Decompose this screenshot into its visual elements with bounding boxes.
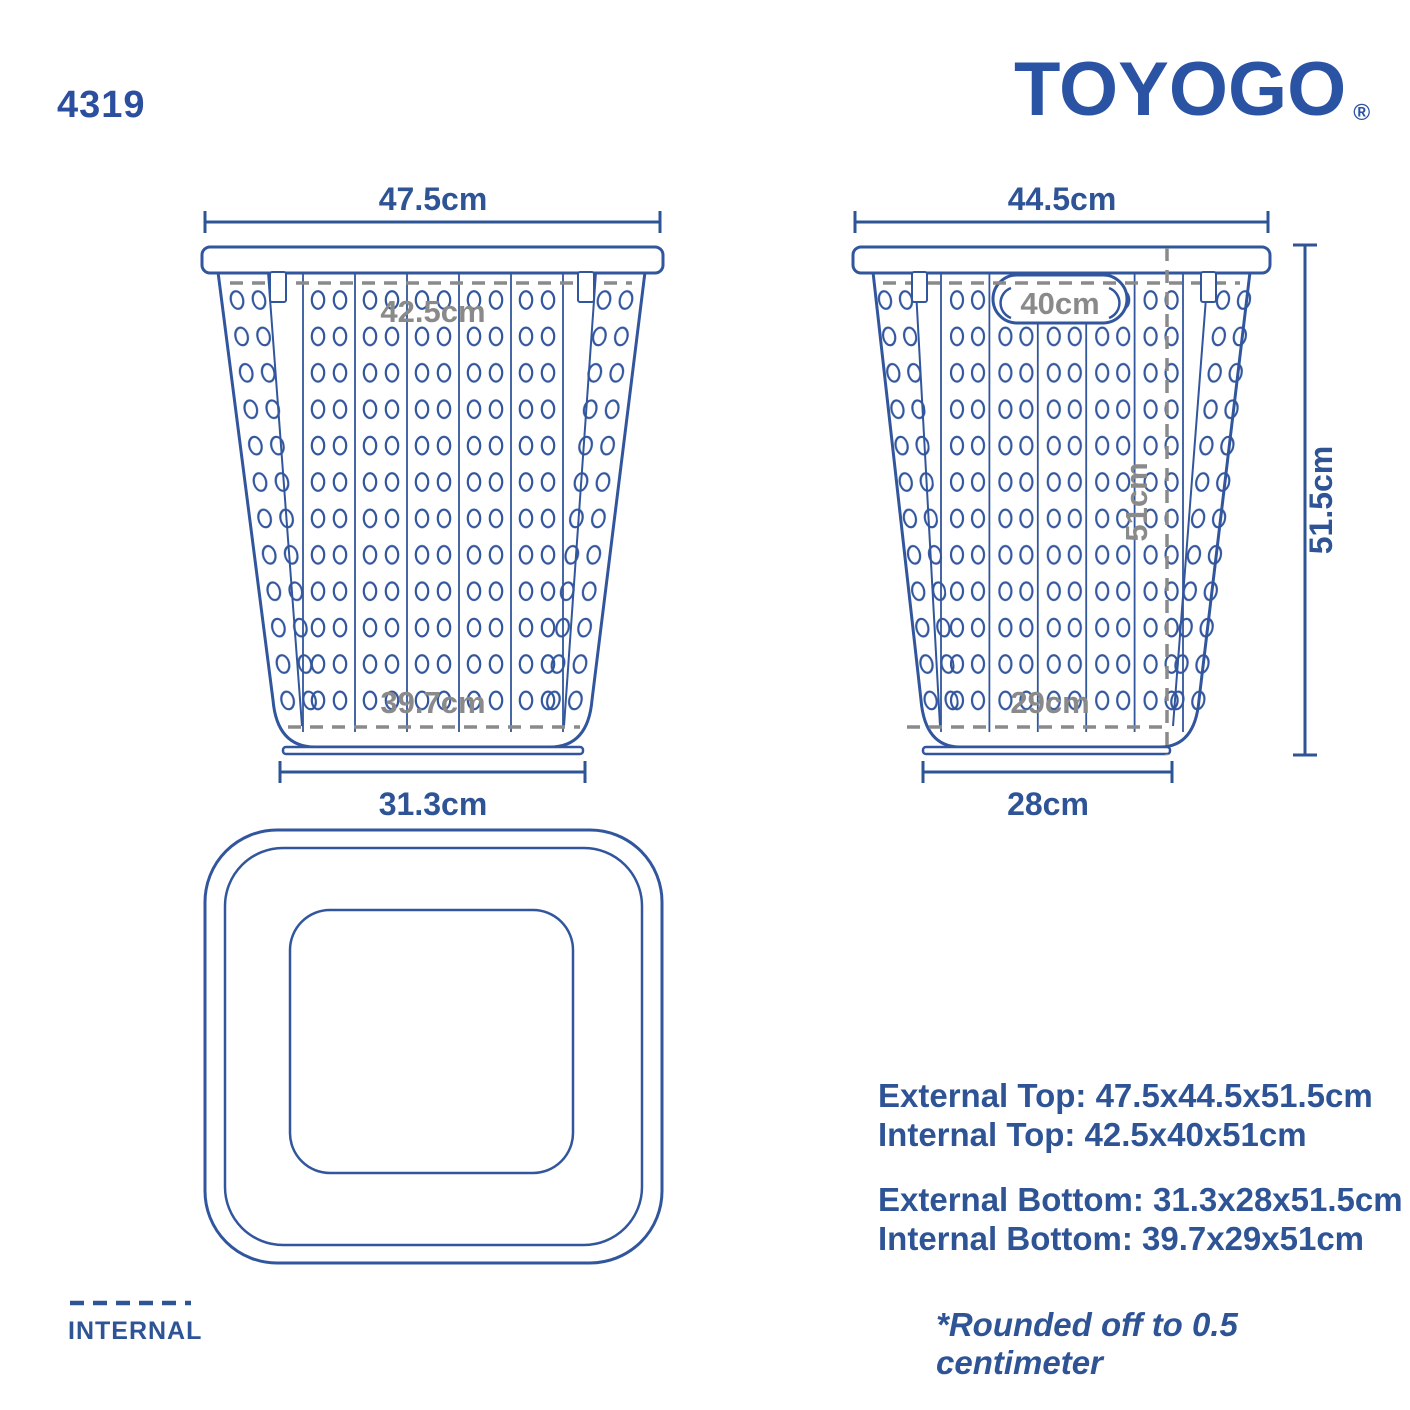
front-internal-top-width-label: 42.5cm	[380, 294, 485, 329]
top-view-drawing	[180, 810, 700, 1280]
side-internal-bottom-depth-label: 29cm	[1010, 685, 1089, 720]
registered-trademark-icon: ®	[1353, 101, 1370, 124]
internal-legend-label: INTERNAL	[68, 1317, 202, 1346]
side-hole-pattern	[865, 283, 1253, 715]
side-bottom-dimension	[923, 761, 1172, 783]
side-foot	[923, 747, 1170, 754]
brand-logo: TOYOGO ®	[1014, 52, 1370, 128]
side-external-height-label: 51.5cm	[1303, 446, 1339, 555]
spec-external-top: External Top: 47.5x44.5x51.5cm	[878, 1076, 1403, 1115]
side-rim	[853, 247, 1270, 273]
dimension-specs: External Top: 47.5x44.5x51.5cm Internal …	[878, 1076, 1403, 1258]
drawing-sheet: 4319 TOYOGO ®	[0, 0, 1410, 1410]
top-view-outer-rim	[205, 830, 662, 1263]
front-foot	[283, 747, 583, 754]
side-external-top-depth-label: 44.5cm	[1008, 181, 1117, 217]
front-view-drawing: 47.5cm 42.5cm 39.7cm 31.3cm	[180, 170, 700, 830]
product-code: 4319	[57, 84, 146, 127]
front-hole-pattern	[218, 283, 635, 715]
side-internal-height-label: 51cm	[1119, 462, 1154, 541]
spec-internal-top: Internal Top: 42.5x40x51cm	[878, 1115, 1403, 1154]
brand-name: TOYOGO	[1014, 52, 1346, 128]
side-internal-top-depth-label: 40cm	[1020, 286, 1099, 321]
spec-external-bottom: External Bottom: 31.3x28x51.5cm	[878, 1180, 1403, 1219]
side-view-drawing: 44.5cm 40cm 51cm 51.5cm 29cm 28cm	[820, 170, 1380, 830]
spec-internal-bottom: Internal Bottom: 39.7x29x51cm	[878, 1219, 1403, 1258]
rounding-footnote: *Rounded off to 0.5 centimeter	[936, 1306, 1410, 1382]
front-external-top-width-label: 47.5cm	[379, 181, 488, 217]
internal-legend: INTERNAL	[68, 1294, 202, 1346]
front-rim	[202, 247, 663, 273]
front-bottom-dimension	[280, 761, 585, 783]
top-view-inner-rim	[225, 848, 642, 1245]
front-internal-bottom-width-label: 39.7cm	[380, 685, 485, 720]
side-external-bottom-depth-label: 28cm	[1007, 786, 1089, 822]
top-view-base	[290, 910, 573, 1173]
internal-dash-sample	[68, 1299, 193, 1307]
